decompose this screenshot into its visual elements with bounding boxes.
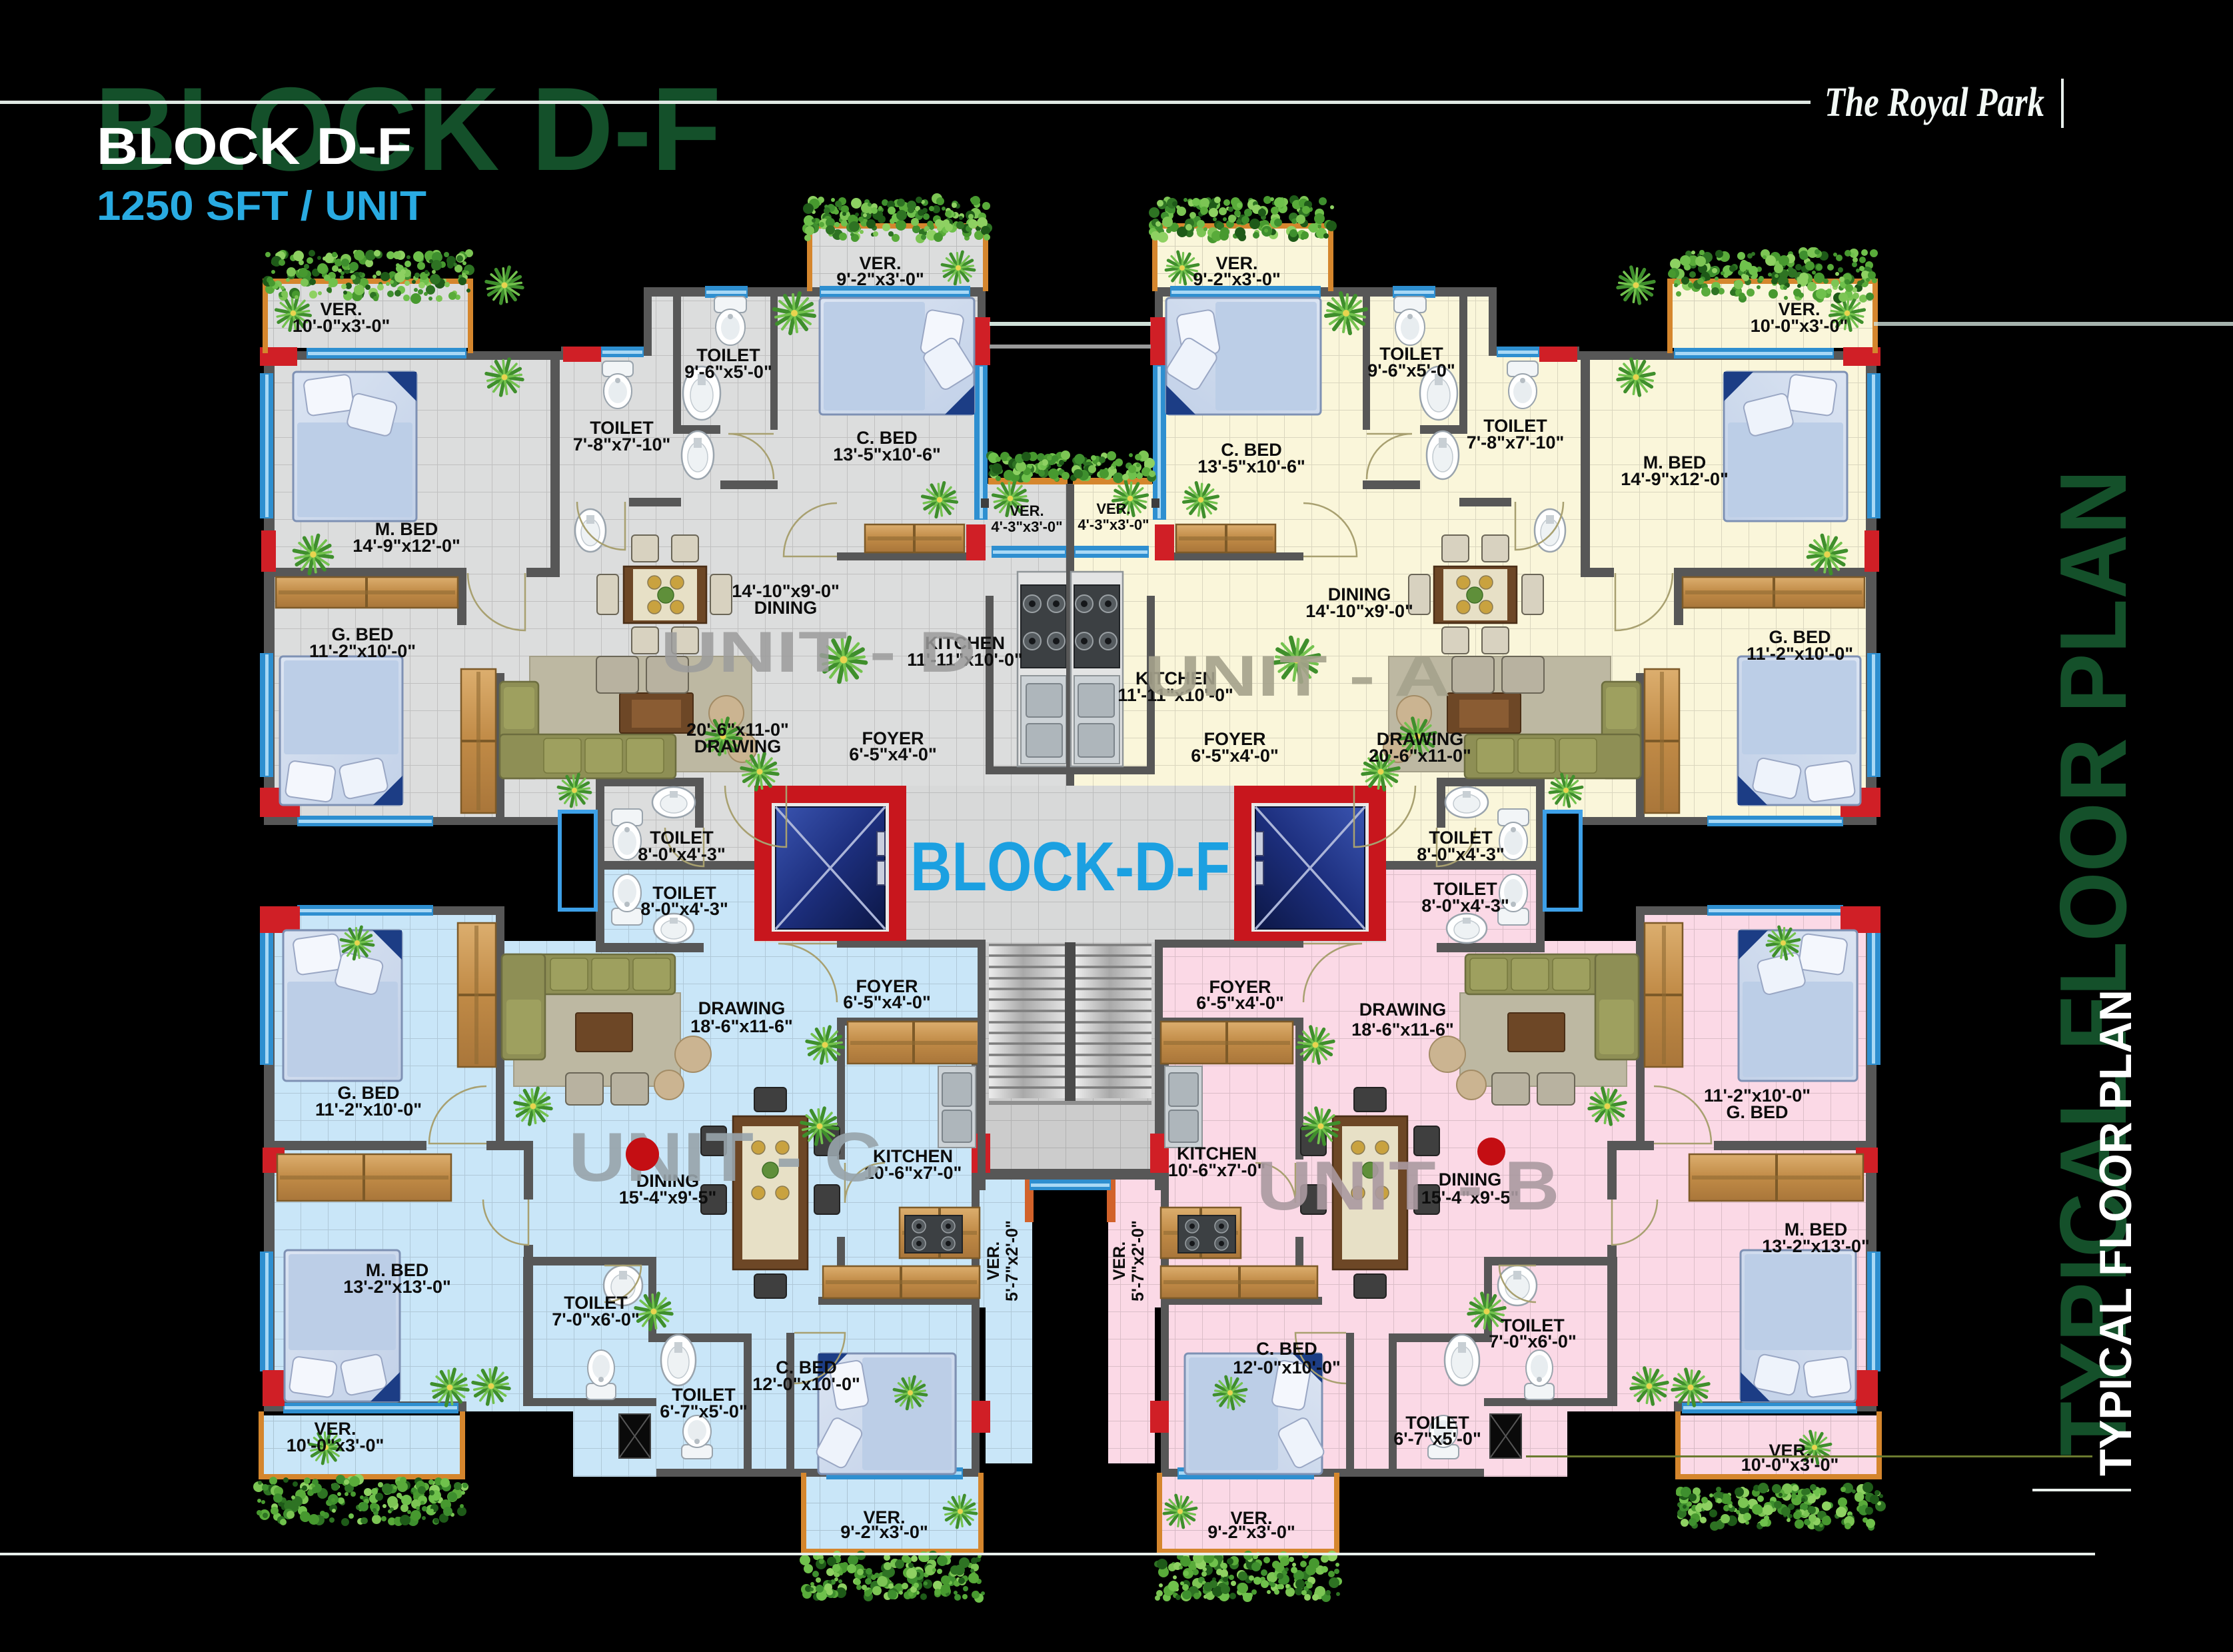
svg-text:18'-6"x11-6": 18'-6"x11-6": [1351, 1020, 1454, 1040]
svg-text:8'-0"x4'-3": 8'-0"x4'-3": [1421, 896, 1509, 916]
svg-text:6'-5"x4'-0": 6'-5"x4'-0": [849, 744, 937, 764]
svg-text:7'-0"x6'-0": 7'-0"x6'-0": [552, 1309, 640, 1329]
svg-text:13'-5"x10'-6": 13'-5"x10'-6": [833, 444, 941, 464]
svg-text:10'-0"x3'-0": 10'-0"x3'-0": [293, 316, 390, 336]
svg-text:7'-0"x6'-0": 7'-0"x6'-0": [1489, 1331, 1577, 1351]
svg-text:UNIT - D: UNIT - D: [660, 620, 976, 684]
svg-text:BLOCK-D-F: BLOCK-D-F: [910, 828, 1230, 906]
svg-text:11'-2"x10'-0": 11'-2"x10'-0": [309, 641, 416, 661]
svg-text:4'-3"x3'-0": 4'-3"x3'-0": [1078, 516, 1149, 533]
svg-text:1250 SFT / UNIT: 1250 SFT / UNIT: [97, 183, 426, 229]
svg-text:13'-2"x13'-0": 13'-2"x13'-0": [343, 1277, 451, 1297]
svg-text:13'-5"x10'-6": 13'-5"x10'-6": [1197, 456, 1305, 476]
svg-text:DRAWING: DRAWING: [698, 998, 786, 1018]
svg-text:5'-7"x2'-0": 5'-7"x2'-0": [1129, 1220, 1147, 1301]
svg-text:DRAWING: DRAWING: [1359, 1000, 1447, 1020]
svg-text:6'-5"x4'-0": 6'-5"x4'-0": [843, 992, 931, 1012]
svg-text:9'-2"x3'-0": 9'-2"x3'-0": [840, 1522, 928, 1542]
svg-text:VER.: VER.: [1096, 500, 1130, 517]
svg-text:18'-6"x11-6": 18'-6"x11-6": [690, 1016, 793, 1036]
svg-text:VER.: VER.: [984, 1241, 1003, 1280]
svg-text:9'-2"x3'-0": 9'-2"x3'-0": [1207, 1522, 1295, 1542]
svg-text:6'-5"x4'-0": 6'-5"x4'-0": [1191, 746, 1279, 766]
svg-text:VER.: VER.: [1010, 502, 1044, 519]
svg-text:UNIT - B: UNIT - B: [1257, 1148, 1560, 1225]
svg-text:11'-2"x10'-0": 11'-2"x10'-0": [315, 1100, 422, 1120]
svg-text:6'-7"x5'-0": 6'-7"x5'-0": [660, 1401, 748, 1421]
svg-text:VER.: VER.: [1110, 1241, 1129, 1280]
svg-text:UNIT - A: UNIT - A: [1144, 644, 1451, 708]
svg-text:9'-6"x5'-0": 9'-6"x5'-0": [1367, 361, 1455, 381]
svg-text:6'-5"x4'-0": 6'-5"x4'-0": [1196, 993, 1284, 1013]
svg-text:11'-2"x10'-0": 11'-2"x10'-0": [1747, 644, 1853, 664]
svg-text:The Royal Park: The Royal Park: [1825, 80, 2044, 125]
svg-text:TYPICAL FLOOR PLAN: TYPICAL FLOOR PLAN: [2090, 990, 2141, 1476]
svg-text:8'-0"x4'-3": 8'-0"x4'-3": [640, 899, 728, 919]
svg-text:10'-0"x3'-0": 10'-0"x3'-0": [287, 1435, 384, 1455]
svg-text:8'-0"x4'-3": 8'-0"x4'-3": [1417, 844, 1505, 864]
svg-text:14'-10"x9'-0": 14'-10"x9'-0": [1305, 601, 1413, 621]
svg-text:9'-2"x3'-0": 9'-2"x3'-0": [836, 269, 924, 289]
svg-text:DRAWING: DRAWING: [694, 736, 782, 756]
svg-text:9'-2"x3'-0": 9'-2"x3'-0": [1193, 269, 1281, 289]
svg-text:9'-6"x5'-0": 9'-6"x5'-0": [684, 362, 772, 382]
svg-text:UNIT - C: UNIT - C: [568, 1119, 882, 1196]
svg-text:8'-0"x4'-3": 8'-0"x4'-3": [638, 844, 726, 864]
svg-text:14'-9"x12'-0": 14'-9"x12'-0": [1621, 469, 1729, 489]
svg-text:5'-7"x2'-0": 5'-7"x2'-0": [1003, 1220, 1022, 1301]
svg-text:14'-9"x12'-0": 14'-9"x12'-0": [353, 536, 460, 556]
svg-text:13'-2"x13'-0": 13'-2"x13'-0": [1762, 1236, 1870, 1256]
svg-text:C. BED: C. BED: [1256, 1339, 1317, 1359]
svg-text:12'-0"x10'-0": 12'-0"x10'-0": [752, 1374, 860, 1394]
svg-text:BLOCK D-F: BLOCK D-F: [97, 117, 412, 175]
svg-text:6'-7"x5'-0": 6'-7"x5'-0": [1393, 1429, 1481, 1449]
svg-text:20'-6"x11-0": 20'-6"x11-0": [1369, 746, 1471, 766]
svg-text:G. BED: G. BED: [1726, 1102, 1788, 1122]
svg-text:7'-8"x7'-10": 7'-8"x7'-10": [573, 434, 671, 454]
svg-text:12'-0"x10'-0": 12'-0"x10'-0": [1233, 1357, 1341, 1377]
svg-text:10'-6"x7'-0": 10'-6"x7'-0": [1168, 1160, 1266, 1180]
svg-text:4'-3"x3'-0": 4'-3"x3'-0": [991, 518, 1062, 535]
svg-text:7'-8"x7'-10": 7'-8"x7'-10": [1467, 432, 1565, 452]
svg-text:10'-0"x3'-0": 10'-0"x3'-0": [1741, 1455, 1839, 1475]
svg-text:DINING: DINING: [754, 598, 818, 618]
svg-text:10'-0"x3'-0": 10'-0"x3'-0": [1751, 316, 1849, 336]
